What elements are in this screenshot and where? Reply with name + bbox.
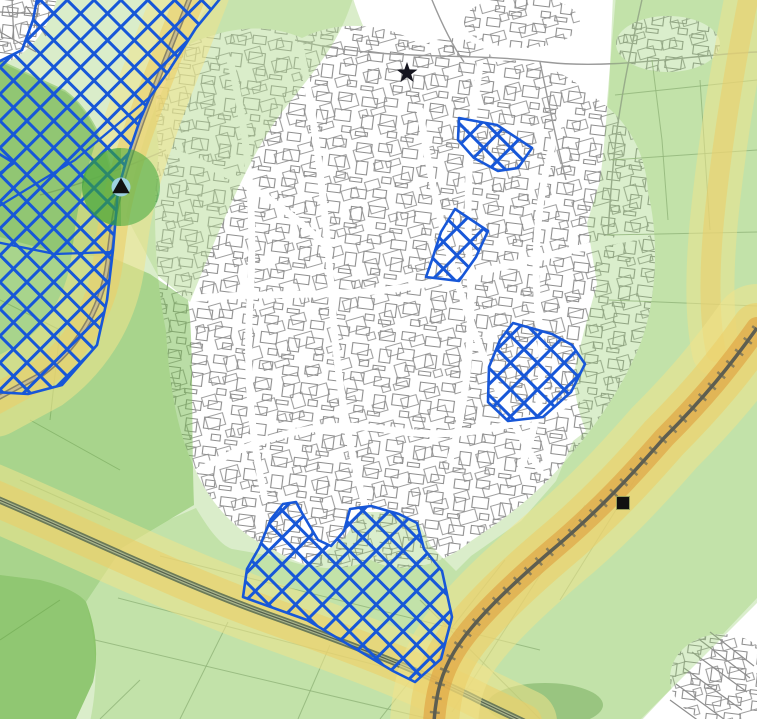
map-canvas[interactable]: [0, 0, 757, 719]
map-svg: [0, 0, 757, 719]
square-marker: [617, 497, 630, 510]
